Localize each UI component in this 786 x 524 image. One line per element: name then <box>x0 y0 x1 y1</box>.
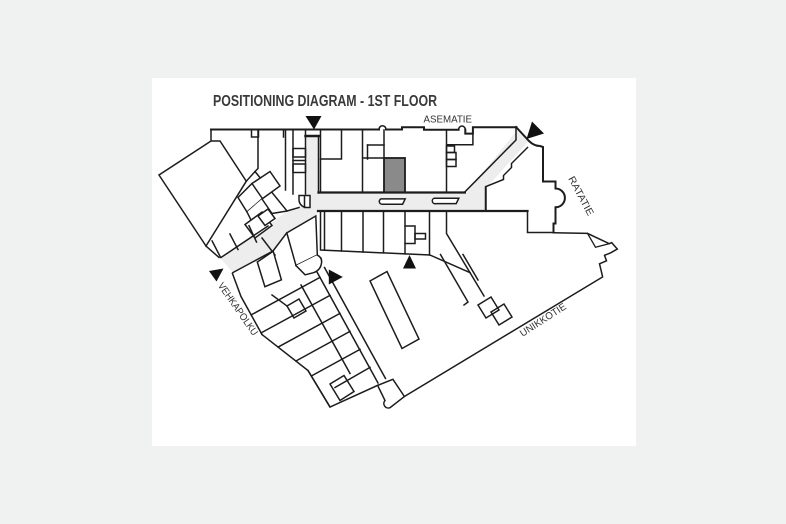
svg-text:ASEMATIE: ASEMATIE <box>424 113 473 125</box>
svg-text:POSITIONING DIAGRAM - 1ST FLOO: POSITIONING DIAGRAM - 1ST FLOOR <box>213 93 437 110</box>
